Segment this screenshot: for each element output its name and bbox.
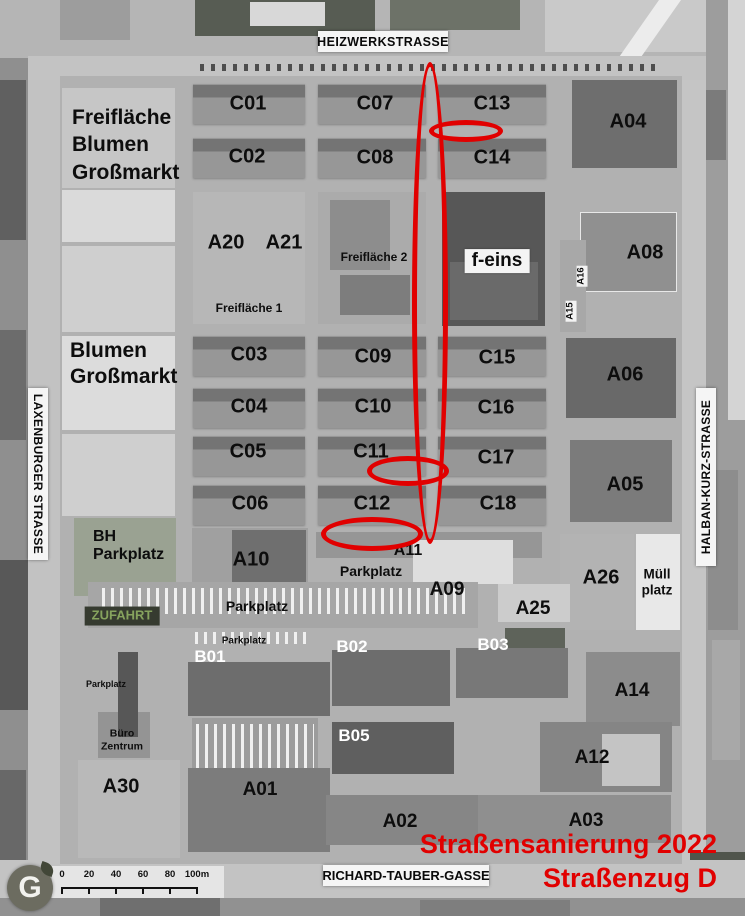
street-label-heizwerkstrasse-text: HEIZWERKSTRASSE <box>317 35 449 49</box>
label-a20: A20 <box>208 232 245 255</box>
annotation-ellipse-c13 <box>429 120 503 142</box>
street-label-richard-tauber-gasse-text: RICHARD-TAUBER-GASSE <box>322 868 489 883</box>
label-f-eins: f-eins <box>465 249 530 273</box>
label-c04: C04 <box>231 396 268 419</box>
labels-layer: Freifläche Blumen GroßmarktC01C07C13A04C… <box>0 0 745 916</box>
label-zufahrt: ZUFAHRT <box>85 607 160 626</box>
scale-tick-mark <box>61 887 63 894</box>
label-a16: A16 <box>577 265 588 286</box>
label-c10: C10 <box>355 396 392 419</box>
label-c17: C17 <box>478 447 515 470</box>
annotation-title-line1: Straßensanierung 2022 <box>420 829 717 860</box>
label-freiflaeche-2: Freifläche 2 <box>341 251 408 265</box>
label-b01: B01 <box>194 647 225 667</box>
label-freiflaeche-1: Freifläche 1 <box>216 302 283 316</box>
label-c03: C03 <box>231 344 268 367</box>
label-b02: B02 <box>336 637 367 657</box>
label-c18: C18 <box>480 493 517 516</box>
label-freiflaeche-blumen-grossmarkt: Freifläche Blumen Großmarkt <box>72 104 179 186</box>
site-map: Freifläche Blumen GroßmarktC01C07C13A04C… <box>0 0 745 916</box>
label-a15: A15 <box>566 300 577 321</box>
street-label-laxenburger-strasse-text: LAXENBURGER STRASSE <box>31 394 45 554</box>
label-c16: C16 <box>478 397 515 420</box>
scale-tick-mark <box>169 887 171 894</box>
scale-tick-label-40: 40 <box>111 869 122 880</box>
annotation-ellipse-c12 <box>321 517 423 551</box>
scale-bar: 020406080100m <box>52 866 224 898</box>
scale-tick-mark <box>196 887 198 894</box>
label-a25: A25 <box>516 598 551 620</box>
label-a12: A12 <box>575 747 610 769</box>
label-c12: C12 <box>354 493 391 516</box>
label-c09: C09 <box>355 346 392 369</box>
scale-tick-mark <box>142 887 144 894</box>
scale-tick-label-100m: 100m <box>185 869 209 880</box>
label-c02: C02 <box>229 146 266 169</box>
street-label-halban-kurz-strasse-text: HALBAN-KURZ-STRASSE <box>699 400 713 554</box>
label-c07: C07 <box>357 93 394 116</box>
grossmarkt-logo: G <box>7 865 53 911</box>
label-b05: B05 <box>338 726 369 746</box>
label-c06: C06 <box>232 493 269 516</box>
label-c08: C08 <box>357 147 394 170</box>
label-parkplatz-mitte: Parkplatz <box>340 563 402 579</box>
label-a08: A08 <box>627 242 664 265</box>
label-c15: C15 <box>479 347 516 370</box>
scale-tick-mark <box>88 887 90 894</box>
logo-letter: G <box>18 873 41 903</box>
label-a06: A06 <box>607 364 644 387</box>
label-c14: C14 <box>474 147 511 170</box>
label-a09: A09 <box>430 579 465 601</box>
street-label-richard-tauber-gasse: RICHARD-TAUBER-GASSE <box>323 865 489 886</box>
annotation-ellipse-c11 <box>367 456 449 486</box>
street-label-halban-kurz-strasse: HALBAN-KURZ-STRASSE <box>696 388 716 566</box>
label-c13: C13 <box>474 93 511 116</box>
label-a21: A21 <box>266 232 303 255</box>
label-a04: A04 <box>610 111 647 134</box>
scale-tick-label-60: 60 <box>138 869 149 880</box>
street-label-laxenburger-strasse: LAXENBURGER STRASSE <box>28 388 48 560</box>
label-c05: C05 <box>230 441 267 464</box>
street-label-heizwerkstrasse: HEIZWERKSTRASSE <box>318 31 448 52</box>
label-a30: A30 <box>103 776 140 799</box>
label-a02: A02 <box>383 811 418 833</box>
label-parkplatz-small: Parkplatz <box>222 635 266 647</box>
label-blumen-grossmarkt: Blumen Großmarkt <box>70 338 177 391</box>
scale-tick-label-80: 80 <box>165 869 176 880</box>
label-a26: A26 <box>583 567 620 590</box>
scale-tick-label-20: 20 <box>84 869 95 880</box>
label-a14: A14 <box>615 680 650 702</box>
label-c01: C01 <box>230 93 267 116</box>
label-a05: A05 <box>607 474 644 497</box>
scale-tick-label-0: 0 <box>59 869 64 880</box>
label-a10: A10 <box>233 549 270 572</box>
scale-bar-line <box>62 887 198 889</box>
label-bh-parkplatz: BH Parkplatz <box>93 528 164 563</box>
label-muell-platz: Müll platz <box>642 566 673 597</box>
label-parkplatz-west: Parkplatz <box>86 679 126 689</box>
scale-tick-mark <box>115 887 117 894</box>
label-b03: B03 <box>477 635 508 655</box>
annotation-title-line2: Straßenzug D <box>543 863 717 894</box>
label-a01: A01 <box>243 779 278 801</box>
label-parkplatz-row: Parkplatz <box>226 598 288 614</box>
label-buero-zentrum: Büro Zentrum <box>101 727 143 752</box>
